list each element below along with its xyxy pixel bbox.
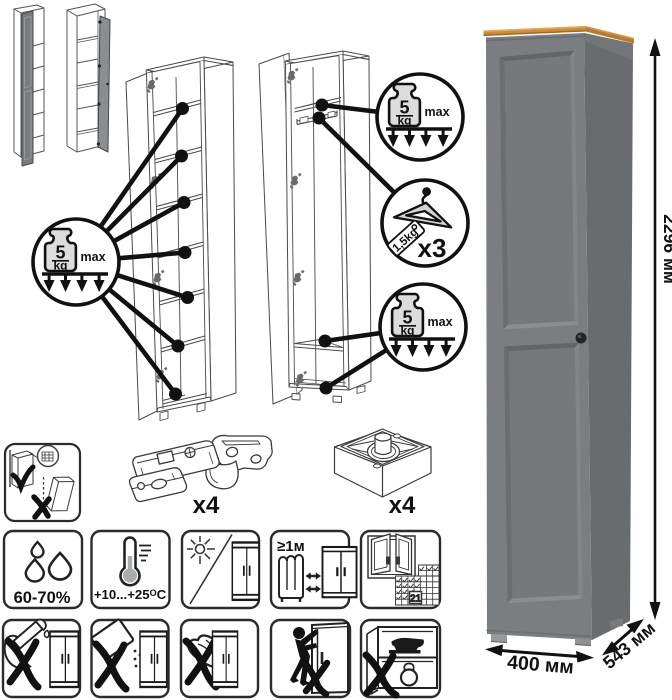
svg-text:x3: x3	[418, 233, 447, 263]
svg-text:2296 мм: 2296 мм	[660, 214, 672, 284]
svg-text:60-70%: 60-70%	[14, 589, 71, 607]
svg-text:≥1м: ≥1м	[277, 538, 305, 555]
svg-text:21: 21	[410, 594, 422, 605]
svg-text:+10...+25OC: +10...+25OC	[94, 587, 167, 602]
svg-text:x4: x4	[389, 492, 416, 519]
svg-text:x4: x4	[193, 492, 220, 519]
